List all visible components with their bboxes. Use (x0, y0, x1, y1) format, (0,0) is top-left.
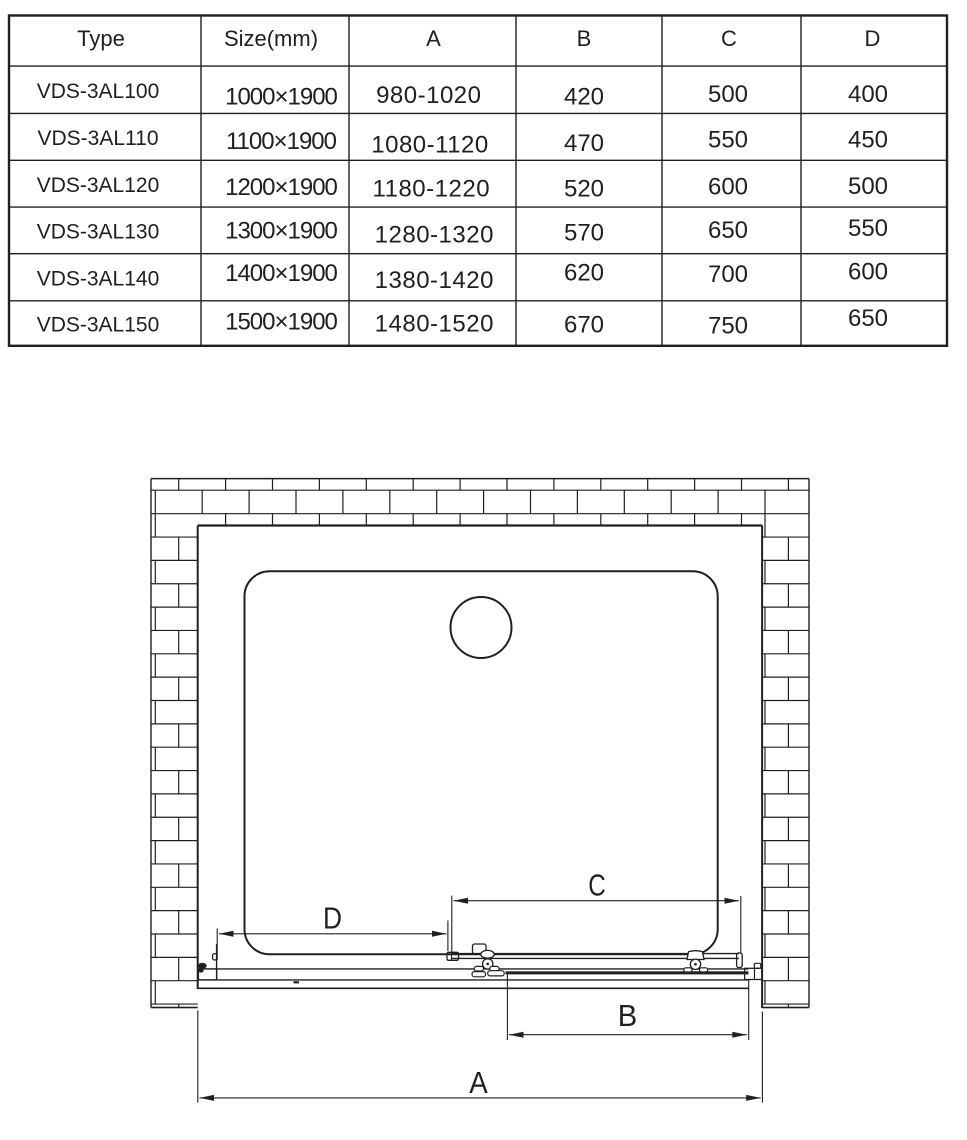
svg-text:1200×1900: 1200×1900 (225, 174, 337, 201)
svg-text:VDS-3AL120: VDS-3AL120 (37, 174, 160, 197)
svg-text:VDS-3AL150: VDS-3AL150 (37, 314, 160, 337)
svg-text:1380-1420: 1380-1420 (375, 267, 494, 294)
svg-text:570: 570 (564, 220, 604, 247)
svg-text:Size(mm): Size(mm) (224, 26, 318, 51)
svg-text:VDS-3AL140: VDS-3AL140 (37, 268, 160, 291)
svg-text:1300×1900: 1300×1900 (225, 217, 337, 244)
svg-text:VDS-3AL110: VDS-3AL110 (37, 127, 158, 150)
svg-text:1280-1320: 1280-1320 (375, 222, 494, 249)
svg-text:500: 500 (848, 173, 888, 200)
svg-text:1400×1900: 1400×1900 (225, 260, 337, 287)
svg-text:550: 550 (848, 215, 888, 242)
svg-text:D: D (323, 900, 342, 935)
svg-text:1100×1900: 1100×1900 (226, 128, 337, 155)
svg-text:620: 620 (564, 259, 604, 286)
svg-text:550: 550 (708, 126, 748, 153)
svg-text:470: 470 (564, 130, 604, 157)
svg-text:VDS-3AL130: VDS-3AL130 (37, 221, 160, 244)
svg-text:A: A (469, 1065, 488, 1100)
svg-text:700: 700 (708, 261, 748, 288)
svg-text:650: 650 (708, 217, 748, 244)
svg-text:C: C (721, 26, 737, 51)
svg-text:Type: Type (77, 26, 125, 51)
svg-text:B: B (618, 998, 638, 1033)
svg-text:A: A (426, 26, 441, 51)
svg-text:450: 450 (848, 126, 888, 153)
svg-text:1080-1120: 1080-1120 (371, 131, 489, 158)
svg-text:1000×1900: 1000×1900 (225, 83, 337, 110)
svg-text:1500×1900: 1500×1900 (225, 308, 337, 335)
svg-text:600: 600 (848, 258, 888, 285)
svg-text:750: 750 (708, 312, 748, 339)
svg-text:600: 600 (708, 173, 748, 200)
svg-text:B: B (577, 26, 592, 51)
svg-text:VDS-3AL100: VDS-3AL100 (37, 80, 160, 103)
svg-text:980-1020: 980-1020 (376, 82, 481, 109)
svg-text:D: D (865, 26, 881, 51)
svg-text:C: C (588, 868, 606, 903)
svg-text:670: 670 (564, 311, 604, 338)
svg-text:1480-1520: 1480-1520 (375, 311, 494, 338)
svg-text:520: 520 (564, 175, 604, 202)
svg-text:650: 650 (848, 305, 888, 332)
svg-text:400: 400 (848, 81, 888, 108)
svg-text:500: 500 (708, 81, 748, 108)
svg-text:420: 420 (564, 83, 604, 110)
svg-text:1180-1220: 1180-1220 (373, 175, 491, 202)
